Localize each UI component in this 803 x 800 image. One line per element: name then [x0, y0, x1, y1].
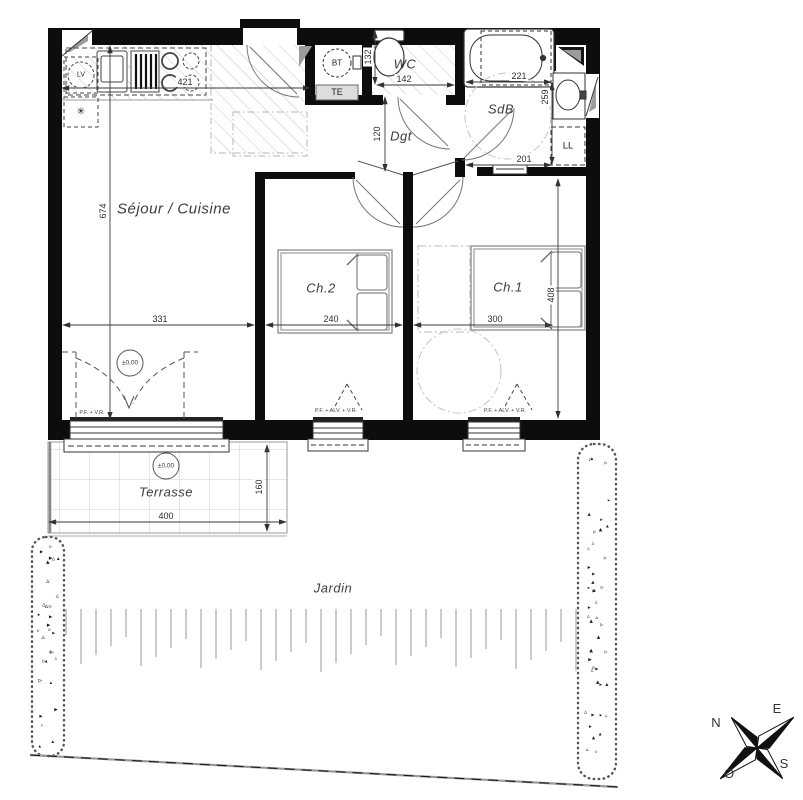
svg-text:▸: ▸	[49, 554, 53, 562]
floor-plan-drawing: ▹▹▴▴▹▵▹▸▸▸▵▵▹▸▴▵▴▸▵▴▹▸▵▸▵▵▹▹▴▸ ▹▴▵▸▹▴▹▴▸…	[0, 0, 803, 800]
svg-text:▴: ▴	[597, 633, 601, 641]
property-boundary-line	[30, 755, 618, 787]
svg-text:▴: ▴	[592, 734, 595, 741]
svg-text:▴: ▴	[599, 732, 602, 738]
dim-living-width: 331	[150, 314, 169, 324]
svg-text:▸: ▸	[591, 711, 594, 718]
dim-bath-top: 221	[509, 71, 528, 81]
dim-wc-width: 142	[394, 74, 413, 84]
dim-hall-width: 120	[372, 124, 382, 143]
bedroom1-window	[463, 384, 532, 451]
washbasin-icon	[553, 73, 586, 119]
svg-text:▵: ▵	[55, 656, 58, 662]
room-label-garden: Jardin	[314, 581, 352, 596]
svg-text:▵: ▵	[584, 710, 587, 716]
fridge-icon: ✳	[77, 107, 85, 118]
dishwasher-label: LV	[77, 72, 85, 79]
svg-text:▸: ▸	[595, 667, 598, 673]
dim-bedroom1-width: 300	[485, 314, 504, 324]
svg-text:▵: ▵	[587, 545, 590, 551]
te-label: TE	[331, 87, 343, 97]
svg-text:▵: ▵	[46, 578, 50, 585]
svg-text:▵: ▵	[592, 541, 595, 547]
svg-text:▵: ▵	[56, 594, 59, 600]
room-label-terrace: Terrasse	[139, 485, 193, 500]
window-label-bedroom1: P.F. + ALV. + V.R.	[484, 408, 526, 414]
room-label-wc: WC	[394, 57, 417, 72]
dim-terrace-depth: 160	[254, 477, 264, 496]
compass-east: E	[773, 701, 782, 716]
svg-text:▹: ▹	[49, 544, 52, 550]
wardrobe-outline	[418, 246, 470, 332]
svg-text:▸: ▸	[588, 657, 592, 664]
room-label-bedroom2: Ch.2	[306, 281, 335, 296]
svg-text:▸: ▸	[588, 605, 591, 611]
compass-west: O	[724, 766, 734, 781]
dim-bedroom1-height: 408	[546, 285, 556, 304]
svg-text:▵: ▵	[595, 615, 598, 621]
room-label-hallway: Dgt	[390, 129, 412, 144]
dim-terrace-width: 400	[156, 511, 175, 521]
living-french-window	[62, 352, 229, 452]
svg-text:▹: ▹	[593, 529, 596, 536]
svg-text:▴: ▴	[57, 556, 60, 562]
dim-wc-depth: 132	[363, 47, 373, 66]
svg-text:▹: ▹	[604, 460, 607, 467]
svg-text:▴: ▴	[606, 524, 609, 530]
svg-text:▵: ▵	[591, 668, 594, 674]
svg-text:▴: ▴	[50, 680, 53, 686]
room-label-bedroom1: Ch.1	[493, 280, 522, 295]
svg-text:▹: ▹	[49, 603, 52, 610]
svg-text:▴: ▴	[596, 677, 600, 686]
svg-text:▹: ▹	[604, 556, 607, 562]
compass-north: N	[711, 715, 720, 730]
svg-text:▴: ▴	[39, 744, 42, 750]
svg-text:▸: ▸	[588, 565, 591, 571]
svg-text:▴: ▴	[593, 587, 596, 594]
drainer-icon	[131, 51, 159, 92]
svg-text:▹: ▹	[43, 658, 46, 665]
bedroom2-window	[308, 384, 368, 451]
svg-text:▹: ▹	[605, 650, 608, 656]
svg-text:▵: ▵	[587, 614, 590, 620]
bedroom1-door	[413, 177, 463, 227]
svg-text:▸: ▸	[47, 622, 51, 629]
bedroom2-door	[353, 177, 403, 227]
svg-text:▸: ▸	[52, 630, 55, 636]
room-label-bathroom: SdB	[488, 102, 514, 117]
svg-text:▹: ▹	[595, 749, 598, 755]
dim-bedroom2-width: 240	[321, 314, 340, 324]
svg-text:▵: ▵	[595, 600, 598, 606]
hedge-right	[578, 444, 616, 779]
radiator-icon	[493, 165, 527, 174]
hedge-left	[32, 537, 64, 756]
svg-text:▹: ▹	[38, 676, 42, 685]
dim-bath-bottom: 201	[514, 154, 533, 164]
level-marker-living: ±0,00	[122, 360, 138, 367]
dim-living-height: 674	[98, 201, 108, 220]
svg-text:▸: ▸	[54, 707, 58, 714]
grass	[66, 609, 576, 672]
room-label-living: Séjour / Cuisine	[117, 201, 231, 218]
level-marker-terrace: ±0,00	[158, 463, 174, 470]
svg-text:▹: ▹	[601, 585, 604, 591]
svg-text:▸: ▸	[39, 713, 42, 720]
svg-text:▸: ▸	[589, 724, 592, 730]
svg-text:▴: ▴	[51, 739, 54, 745]
svg-text:▸: ▸	[600, 517, 603, 523]
svg-text:▹: ▹	[589, 457, 592, 463]
svg-text:▵: ▵	[41, 634, 45, 641]
floor-plan: ▹▹▴▴▹▵▹▸▸▸▵▵▹▸▴▵▴▸▵▴▹▸▵▸▵▵▹▹▴▸ ▹▴▵▸▹▴▹▴▸…	[0, 0, 803, 800]
washing-machine-label: LL	[563, 141, 574, 152]
svg-text:▴: ▴	[589, 646, 593, 655]
svg-text:▸: ▸	[600, 682, 603, 688]
svg-text:▵: ▵	[42, 602, 46, 609]
svg-text:▵: ▵	[49, 649, 52, 655]
compass-rose-icon	[695, 687, 803, 800]
compass-south: S	[780, 756, 789, 771]
window-label-bedroom2: P.F. + ALV. + V.R.	[315, 408, 357, 414]
svg-text:▴: ▴	[605, 682, 608, 688]
dim-bath-height: 259	[540, 87, 550, 106]
water-heater-label: BT	[332, 59, 342, 68]
svg-text:▴: ▴	[599, 525, 603, 533]
svg-text:▸: ▸	[592, 571, 595, 578]
dim-kitchen-top: 421	[175, 77, 194, 87]
svg-text:▵: ▵	[586, 747, 589, 753]
window-label-living: P.F. + V.R.	[79, 410, 104, 416]
svg-text:▴: ▴	[589, 616, 593, 625]
turning-circle-ch1	[417, 329, 501, 413]
